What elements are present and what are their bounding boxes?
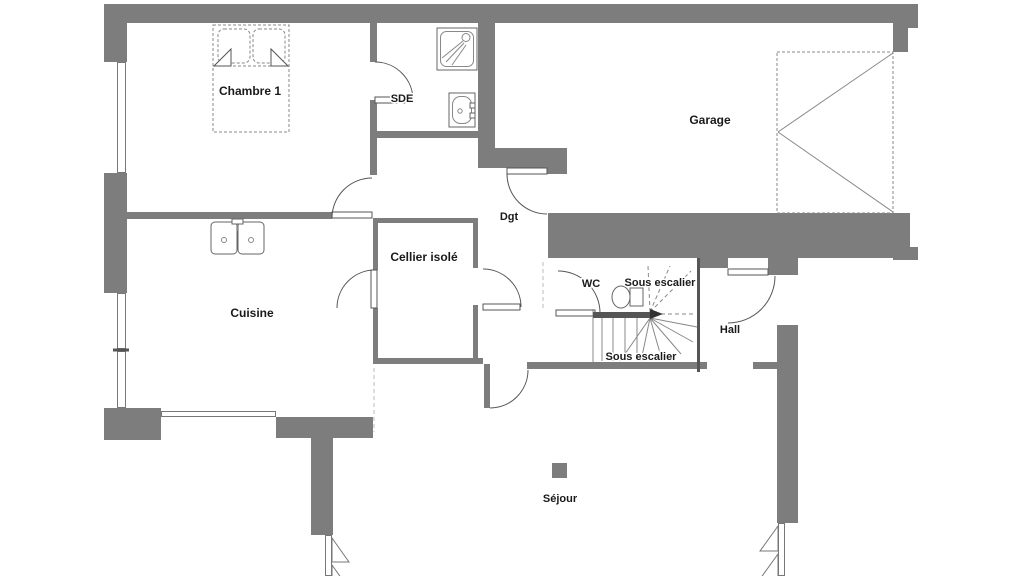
washbasin-tap-1 [470,103,475,108]
room-label-dgt: Dgt [500,211,519,223]
wall-stairwell-right [697,258,700,372]
double-bed [213,25,289,132]
room-label-sous-escalier-haut: Sous escalier [625,277,697,289]
garage-sectional-door [777,52,893,213]
door-wc-leaf [556,310,595,316]
garage-door-diagonals [778,53,893,212]
toilet-cistern [630,288,643,306]
floor-plan: Chambre 1 SDE Garage Dgt Cellier isolé C… [0,0,1024,576]
structural-post [552,463,567,478]
shower-outline [437,28,477,70]
french-window-right [779,524,785,576]
wall-cellier-right-upper [473,223,478,268]
door-garage-swing [507,174,547,214]
door-chambre-leaf [332,212,372,218]
french-window-right-leaf-2 [760,554,778,576]
stair-direction-arrow [650,309,663,319]
wall-cellier-top [373,218,478,223]
door-cellier-dgt-swing [483,269,521,307]
wall-sejour-top-stub-left [700,362,707,369]
room-label-cellier: Cellier isolé [390,250,458,264]
room-label-wc: WC [582,278,600,290]
wall-bottom-right-corner [893,247,918,260]
open-boundaries [374,262,543,432]
bed-sheet-fold-left [214,49,231,66]
french-window-right-leaf-1 [760,526,778,551]
french-window-left-leaf-2 [332,565,349,576]
wall-chambre-sde-upper [370,23,377,62]
wall-left-bottom-corner [104,408,161,440]
kitchen-double-sink [211,219,264,254]
wall-cuisine-bottom [276,417,373,438]
window-chambre-left [118,63,126,173]
room-label-hall: Hall [720,324,740,336]
shower-tray [437,28,477,70]
sink-faucet [232,219,243,224]
windows [113,63,785,576]
wall-sejour-top-stub-right [753,362,777,369]
french-window-left-leaf-1 [332,538,349,562]
wall-garage-left [478,23,495,148]
washbasin-tap-2 [470,113,475,118]
room-label-garage: Garage [689,113,731,127]
toilet-bowl [612,286,630,308]
window-cuisine-bottom [162,412,276,417]
stair-landing-bar [593,312,652,318]
wall-sejour-left [311,438,333,535]
toilet [612,286,643,308]
washbasin [449,93,475,127]
window-mullion-tick [113,349,129,352]
garage-door-panel [777,52,893,213]
entrance-door-leaf [728,269,768,275]
door-cellier-cuisine-leaf [371,270,377,308]
wall-garage-door-jamb [547,148,567,174]
wall-sejour-top [527,362,707,369]
room-label-cuisine: Cuisine [230,306,274,320]
wall-garage-bottom [548,213,910,258]
door-sejour-swing [490,370,528,408]
room-label-sejour: Séjour [543,493,578,505]
stair-upper-dashed [648,266,694,314]
wall-cellier-left-lower [373,308,378,358]
room-label-sous-escalier-bas: Sous escalier [606,351,678,363]
wall-hall-top-right [768,258,798,275]
door-garage-leaf [507,168,547,174]
wall-sde-bottom [377,131,478,138]
wall-sejour-right [777,325,798,523]
room-label-chambre-1: Chambre 1 [219,84,281,98]
wall-hall-top-left [697,258,728,268]
wall-cellier-right-lower [473,305,478,358]
wall-cellier-left-upper [373,223,378,270]
wall-chambre-cuisine [127,212,332,219]
bed-outline [213,25,289,132]
window-cuisine-left-lower [118,352,126,408]
wall-top [104,4,893,23]
wall-sejour-door-stub [484,364,490,408]
floor-plan-drawing: Chambre 1 SDE Garage Dgt Cellier isolé C… [0,0,1024,576]
wall-left-top [104,4,127,62]
wall-garage-right-upper [893,23,908,52]
wall-chambre-sde-lower [370,100,377,175]
door-cellier-dgt-leaf [483,304,520,310]
french-window-left [326,536,332,576]
wall-left-mid [104,173,127,293]
entrance-door-swing [728,276,775,323]
door-cellier-cuisine-swing [337,270,375,308]
window-cuisine-left-upper [118,294,126,349]
wall-cellier-bottom [373,358,483,364]
room-label-sde: SDE [391,93,414,105]
